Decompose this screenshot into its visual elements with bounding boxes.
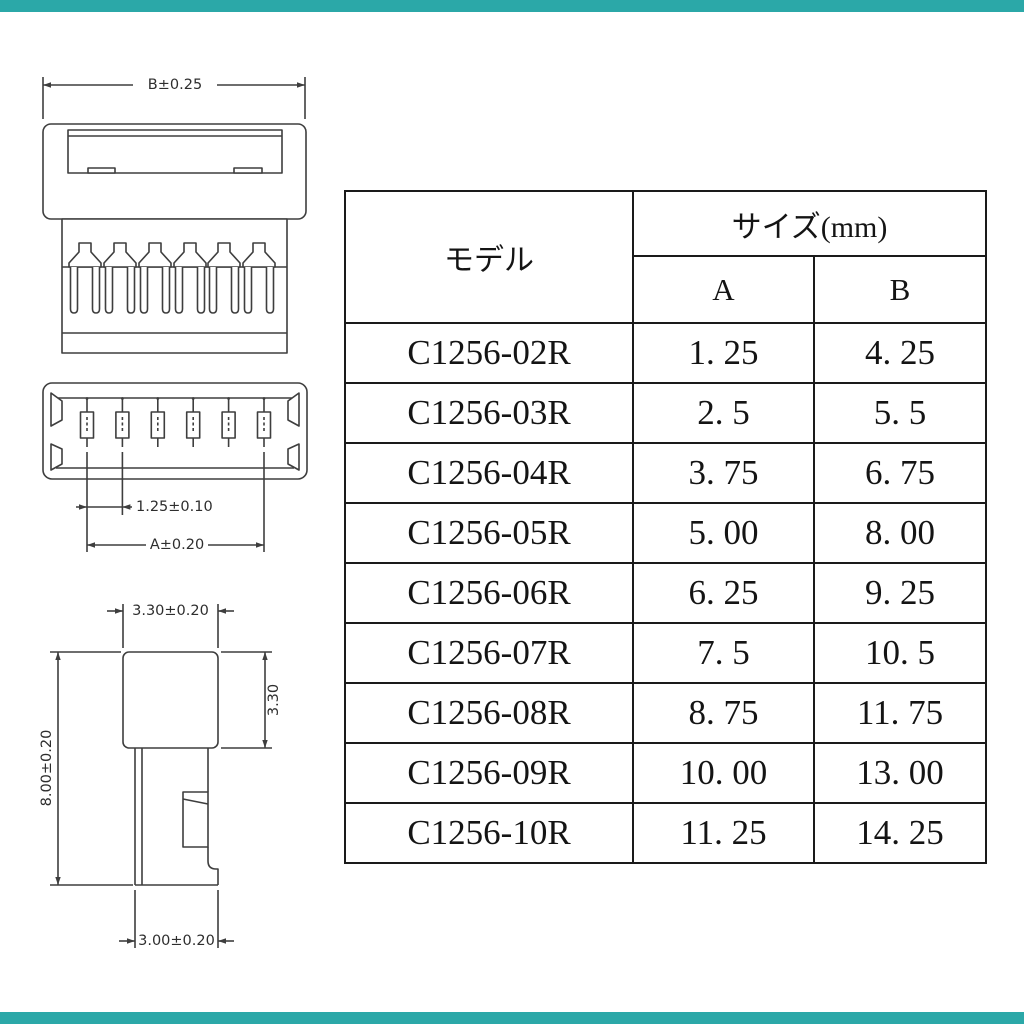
table-row: C1256-02R 1. 25 4. 25: [345, 323, 986, 383]
value-b-cell: 9. 25: [814, 563, 986, 623]
side-body-outline: [135, 748, 218, 885]
column-header-size: サイズ(mm): [633, 191, 986, 256]
column-header-a: A: [633, 256, 814, 323]
value-a-cell: 3. 75: [633, 443, 814, 503]
dimension-label-bottom-width: 3.00±0.20: [138, 933, 215, 949]
front-view-drawing: 1.25±0.10 A±0.20: [43, 383, 307, 553]
value-b-cell: 6. 75: [814, 443, 986, 503]
value-a-cell: 5. 00: [633, 503, 814, 563]
value-a-cell: 8. 75: [633, 683, 814, 743]
model-cell: C1256-02R: [345, 323, 633, 383]
dimension-label-b: B±0.25: [148, 77, 202, 93]
value-a-cell: 2. 5: [633, 383, 814, 443]
model-cell: C1256-07R: [345, 623, 633, 683]
side-head-outline: [123, 652, 218, 748]
column-header-model: モデル: [345, 191, 633, 323]
dimension-label-head-width: 3.30±0.20: [132, 603, 209, 619]
value-b-cell: 5. 5: [814, 383, 986, 443]
table-row: C1256-03R 2. 5 5. 5: [345, 383, 986, 443]
value-b-cell: 14. 25: [814, 803, 986, 863]
table-row: C1256-09R 10. 00 13. 00: [345, 743, 986, 803]
model-cell: C1256-06R: [345, 563, 633, 623]
dimension-label-head-height: 3.30: [266, 684, 282, 716]
value-a-cell: 7. 5: [633, 623, 814, 683]
model-cell: C1256-09R: [345, 743, 633, 803]
model-cell: C1256-04R: [345, 443, 633, 503]
column-header-b: B: [814, 256, 986, 323]
value-b-cell: 11. 75: [814, 683, 986, 743]
connector-spec-sheet: B±0.25: [0, 0, 1024, 1024]
model-cell: C1256-03R: [345, 383, 633, 443]
value-a-cell: 10. 00: [633, 743, 814, 803]
side-view-drawing: 3.30±0.20 3.30 8.00±0.20: [39, 603, 282, 949]
model-cell: C1256-08R: [345, 683, 633, 743]
value-a-cell: 1. 25: [633, 323, 814, 383]
model-cell: C1256-05R: [345, 503, 633, 563]
value-b-cell: 4. 25: [814, 323, 986, 383]
table-row: C1256-04R 3. 75 6. 75: [345, 443, 986, 503]
value-b-cell: 10. 5: [814, 623, 986, 683]
value-a-cell: 11. 25: [633, 803, 814, 863]
table-row: C1256-06R 6. 25 9. 25: [345, 563, 986, 623]
value-a-cell: 6. 25: [633, 563, 814, 623]
model-cell: C1256-10R: [345, 803, 633, 863]
dimension-label-span-a: A±0.20: [150, 537, 204, 553]
value-b-cell: 8. 00: [814, 503, 986, 563]
size-table: モデル サイズ(mm) A B C1256-02R 1. 25 4. 25 C1…: [344, 190, 987, 864]
dimension-label-total-height: 8.00±0.20: [39, 730, 55, 807]
technical-drawings: B±0.25: [0, 0, 340, 1024]
top-view-drawing: B±0.25: [43, 77, 306, 353]
table-row: C1256-10R 11. 25 14. 25: [345, 803, 986, 863]
value-b-cell: 13. 00: [814, 743, 986, 803]
table-row: C1256-08R 8. 75 11. 75: [345, 683, 986, 743]
table-row: C1256-05R 5. 00 8. 00: [345, 503, 986, 563]
table-row: C1256-07R 7. 5 10. 5: [345, 623, 986, 683]
dimension-label-pitch: 1.25±0.10: [136, 499, 213, 515]
